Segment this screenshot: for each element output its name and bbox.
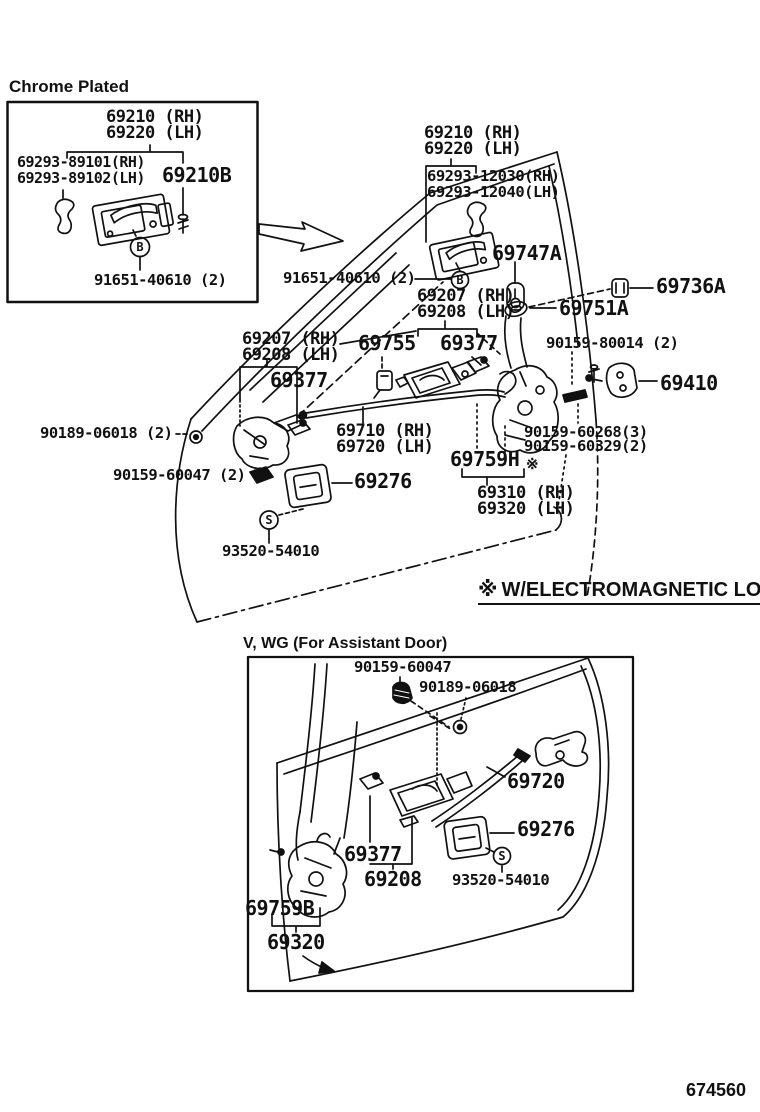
part-label-69208: 69208 <box>364 869 422 889</box>
part-label-69293-lh: 69293-12040(LH) <box>427 185 559 201</box>
part-label-69293-rh: 69293-89101(RH) <box>17 155 145 170</box>
part-label-90159-60047: 90159-60047 <box>354 660 451 676</box>
electromagnetic-lock-star: ※ <box>526 455 539 473</box>
chrome-handle-part <box>92 193 175 246</box>
electromagnetic-lock-note: ※W/ELECTROMAGNETIC LOCK <box>478 580 760 605</box>
circled-b-marker: B <box>136 240 143 254</box>
part-label-69751a: 69751A <box>559 298 628 318</box>
part-label-93520: 93520-54010 <box>222 544 319 560</box>
arrow-glyph <box>259 222 343 251</box>
part-label-69410: 69410 <box>660 373 718 393</box>
part-label-69747a: 69747A <box>492 243 561 263</box>
part-label-69220-lh: 69220 (LH) <box>106 125 203 142</box>
part-label-69736a: 69736A <box>656 276 725 296</box>
parts-diagram-page: B B S S Chrome Plated 69210 (RH) 69220 (… <box>0 0 760 1112</box>
note-star-symbol: ※ <box>478 579 497 601</box>
part-label-93520: 93520-54010 <box>452 873 549 889</box>
part-label-90159-80014: 90159-80014 (2) <box>546 336 678 352</box>
chrome-box-title: Chrome Plated <box>9 78 129 95</box>
part-label-69377: 69377 <box>344 844 402 864</box>
part-label-91651: 91651-40610 (2) <box>283 271 415 287</box>
part-label-69720-lh: 69720 (LH) <box>336 439 433 456</box>
part-label-69208-lh: 69208 (LH) <box>242 347 339 364</box>
part-label-69377: 69377 <box>270 370 328 390</box>
page-code: 674560 <box>686 1081 746 1099</box>
part-label-69320-lh: 69320 (LH) <box>477 501 574 518</box>
part-label-69759b: 69759B <box>245 898 314 918</box>
part-label-69293-lh: 69293-89102(LH) <box>17 171 145 186</box>
part-label-90159-60047: 90159-60047 (2) <box>113 468 245 484</box>
part-label-69759h: 69759H <box>450 449 519 469</box>
part-label-69276: 69276 <box>354 471 412 491</box>
circled-s-marker: S <box>498 849 505 863</box>
part-label-69720: 69720 <box>507 771 565 791</box>
part-label-91651: 91651-40610 (2) <box>94 273 226 289</box>
part-label-69210b: 69210B <box>162 165 231 185</box>
circled-b-marker: B <box>456 273 463 287</box>
part-label-69320: 69320 <box>267 932 325 952</box>
assistant-box-title: V, WG (For Assistant Door) <box>243 636 447 652</box>
part-label-90159-60329: 90159-60329(2) <box>524 439 648 455</box>
note-text: W/ELECTROMAGNETIC LOCK <box>501 579 760 601</box>
part-label-90189-06018: 90189-06018 (2) <box>40 426 172 442</box>
part-label-69377: 69377 <box>440 333 498 353</box>
part-label-69755: 69755 <box>358 333 416 353</box>
part-label-69208-lh: 69208 (LH) <box>417 304 514 321</box>
part-label-69220-lh: 69220 (LH) <box>424 141 521 158</box>
part-label-90189-06018: 90189-06018 <box>419 680 516 696</box>
part-label-69276: 69276 <box>517 819 575 839</box>
circled-s-marker: S <box>265 513 272 527</box>
